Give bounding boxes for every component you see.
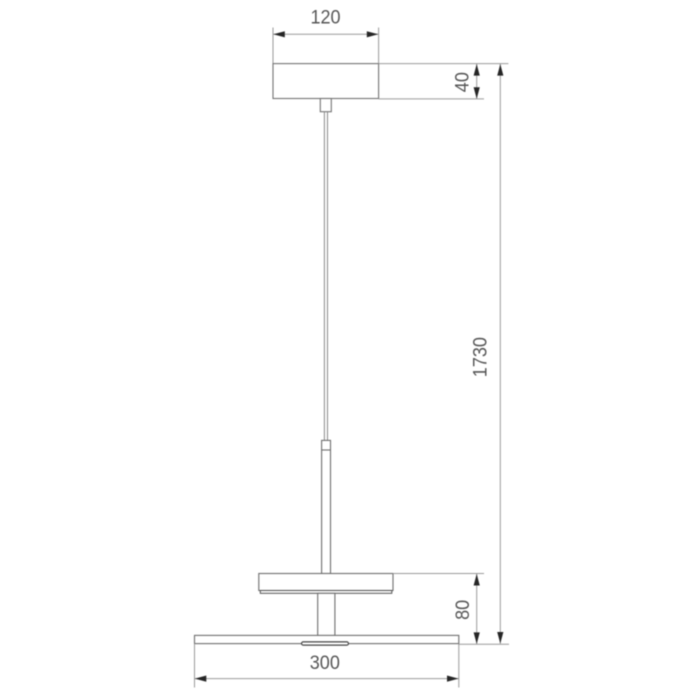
svg-text:80: 80 [451,600,473,620]
svg-text:40: 40 [451,72,473,92]
svg-text:1730: 1730 [469,337,491,377]
svg-text:300: 300 [310,651,340,673]
svg-text:120: 120 [310,6,340,28]
